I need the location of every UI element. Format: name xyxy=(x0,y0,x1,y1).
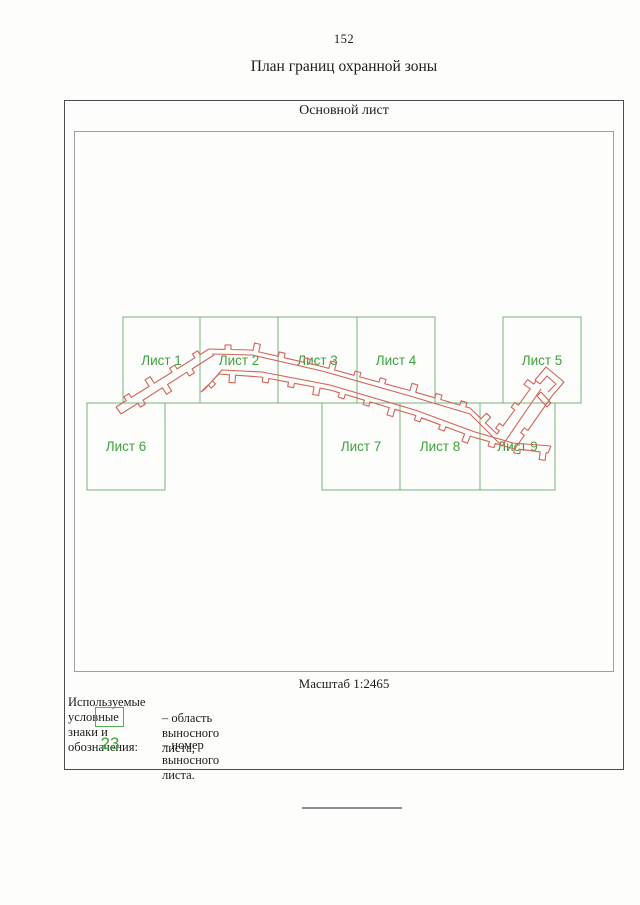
legend-number-text: – номер выносного листа. xyxy=(162,738,219,783)
sheet-label-7: Лист 7 xyxy=(322,403,400,490)
sheet-number-symbol: 23 xyxy=(95,734,125,754)
main-sheet-title: Основной лист xyxy=(64,103,624,119)
page-number: 152 xyxy=(64,32,624,47)
sheet-label-4: Лист 4 xyxy=(357,317,435,403)
sheet-label-1: Лист 1 xyxy=(123,317,200,403)
sheet-area-symbol xyxy=(95,707,124,727)
sheet-label-3: Лист 3 xyxy=(278,317,357,403)
sheet-label-6: Лист 6 xyxy=(87,403,165,490)
footer-rule xyxy=(302,807,402,809)
sheet-label-2: Лист 2 xyxy=(200,317,278,403)
page-title: План границ охранной зоны xyxy=(64,58,624,76)
sheet-label-9: Лист 9 xyxy=(480,403,555,490)
sheet-label-8: Лист 8 xyxy=(400,403,480,490)
sheet-label-5: Лист 5 xyxy=(503,317,581,403)
scale-label: Масштаб 1:2465 xyxy=(64,676,624,692)
document-page: { "page": { "number": "152", "title": "П… xyxy=(0,0,640,905)
